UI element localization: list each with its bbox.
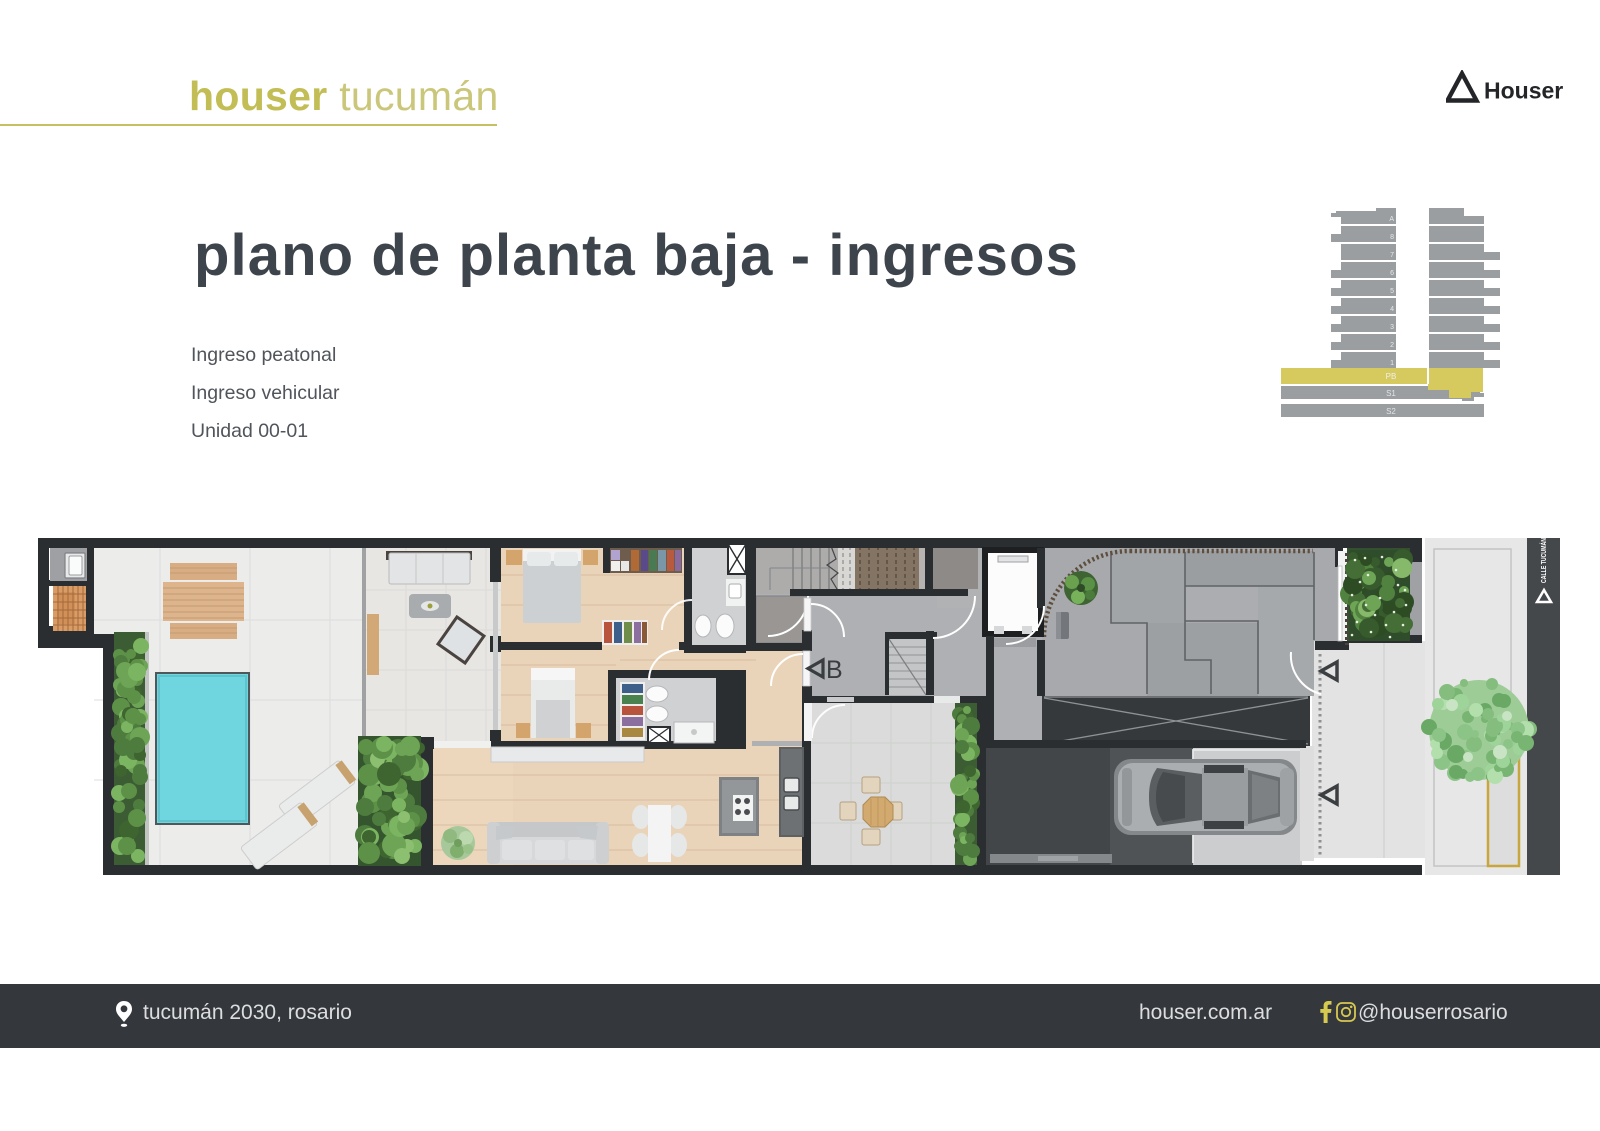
svg-text:CALLE TUCUMÁN: CALLE TUCUMÁN [1539,538,1548,583]
svg-text:B: B [826,656,843,684]
